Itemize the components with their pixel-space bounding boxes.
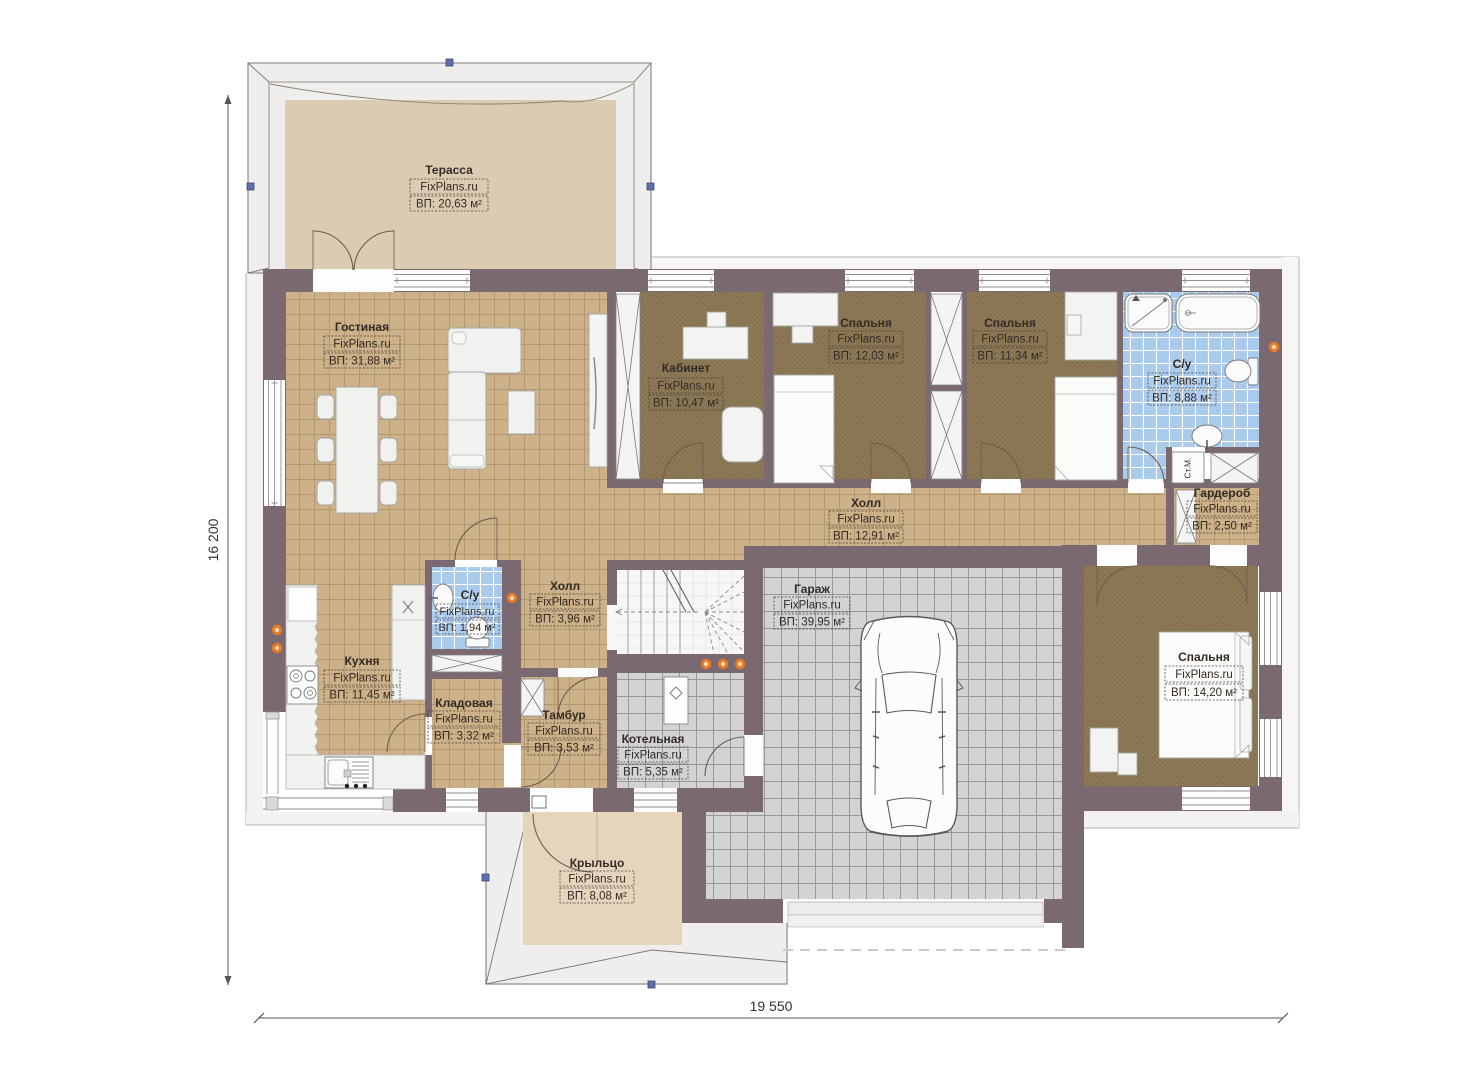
svg-text:ВП: 14,20 м²: ВП: 14,20 м² <box>1171 687 1237 699</box>
svg-text:FixPlans.ru: FixPlans.ru <box>837 514 895 526</box>
svg-text:FixPlans.ru: FixPlans.ru <box>536 597 594 609</box>
svg-text:FixPlans.ru: FixPlans.ru <box>657 381 715 393</box>
svg-text:FixPlans.ru: FixPlans.ru <box>333 673 391 685</box>
svg-text:ВП: 11,34 м²: ВП: 11,34 м² <box>977 351 1042 363</box>
svg-text:Терасса: Терасса <box>425 163 473 177</box>
svg-text:ВП: 11,45 м²: ВП: 11,45 м² <box>329 690 394 702</box>
svg-text:Тамбур: Тамбур <box>542 708 586 722</box>
svg-text:ВП: 8,88 м²: ВП: 8,88 м² <box>1152 393 1212 405</box>
svg-text:ВП: 39,95 м²: ВП: 39,95 м² <box>779 617 845 629</box>
svg-text:С/у: С/у <box>461 588 480 602</box>
svg-text:Котельная: Котельная <box>622 732 685 746</box>
svg-text:FixPlans.ru: FixPlans.ru <box>1193 504 1251 516</box>
svg-text:Холл: Холл <box>851 496 881 510</box>
svg-text:Холл: Холл <box>550 579 580 593</box>
svg-text:FixPlans.ru: FixPlans.ru <box>535 726 593 738</box>
svg-text:ВП: 10,47 м²: ВП: 10,47 м² <box>653 398 719 410</box>
svg-text:FixPlans.ru: FixPlans.ru <box>981 334 1039 346</box>
svg-text:Спальня: Спальня <box>840 316 892 330</box>
svg-text:ВП: 20,63 м²: ВП: 20,63 м² <box>416 199 482 211</box>
svg-text:Кладовая: Кладовая <box>435 696 492 710</box>
svg-text:Гараж: Гараж <box>794 582 830 596</box>
svg-text:19 550: 19 550 <box>750 998 793 1014</box>
svg-text:FixPlans.ru: FixPlans.ru <box>1153 376 1211 388</box>
svg-text:С/у: С/у <box>1173 357 1192 371</box>
svg-text:Спальня: Спальня <box>1178 650 1230 664</box>
svg-text:Ст.М.: Ст.М. <box>1182 458 1192 479</box>
svg-text:ВП: 3,53 м²: ВП: 3,53 м² <box>534 743 594 755</box>
svg-text:Гостиная: Гостиная <box>335 320 389 334</box>
svg-text:FixPlans.ru: FixPlans.ru <box>420 182 478 194</box>
svg-text:FixPlans.ru: FixPlans.ru <box>837 334 895 346</box>
svg-text:ВП: 12,91 м²: ВП: 12,91 м² <box>833 531 899 543</box>
svg-text:FixPlans.ru: FixPlans.ru <box>435 714 493 726</box>
svg-text:ВП: 8,08 м²: ВП: 8,08 м² <box>567 891 627 903</box>
svg-text:ВП: 3,32 м²: ВП: 3,32 м² <box>434 731 494 743</box>
svg-text:ВП: 3,96 м²: ВП: 3,96 м² <box>535 614 595 626</box>
svg-text:Кабинет: Кабинет <box>662 361 711 375</box>
svg-text:FixPlans.ru: FixPlans.ru <box>333 339 391 351</box>
svg-text:ВП: 12,03 м²: ВП: 12,03 м² <box>833 351 899 363</box>
svg-text:ВП: 31,88 м²: ВП: 31,88 м² <box>329 356 395 368</box>
svg-text:FixPlans.ru: FixPlans.ru <box>568 874 626 886</box>
svg-text:FixPlans.ru: FixPlans.ru <box>1175 669 1233 681</box>
svg-text:Кухня: Кухня <box>344 654 379 668</box>
svg-text:ВП: 1,94 м²: ВП: 1,94 м² <box>438 622 495 634</box>
svg-text:ВП: 5,35 м²: ВП: 5,35 м² <box>623 767 683 779</box>
svg-text:Спальня: Спальня <box>984 316 1036 330</box>
svg-text:FixPlans.ru: FixPlans.ru <box>624 750 682 762</box>
svg-text:FixPlans.ru: FixPlans.ru <box>439 606 494 618</box>
svg-text:Гардероб: Гардероб <box>1194 486 1251 500</box>
svg-text:FixPlans.ru: FixPlans.ru <box>783 600 841 612</box>
svg-text:ВП: 2,50 м²: ВП: 2,50 м² <box>1192 521 1252 533</box>
svg-text:Крыльцо: Крыльцо <box>570 856 625 870</box>
svg-text:16 200: 16 200 <box>205 518 221 561</box>
